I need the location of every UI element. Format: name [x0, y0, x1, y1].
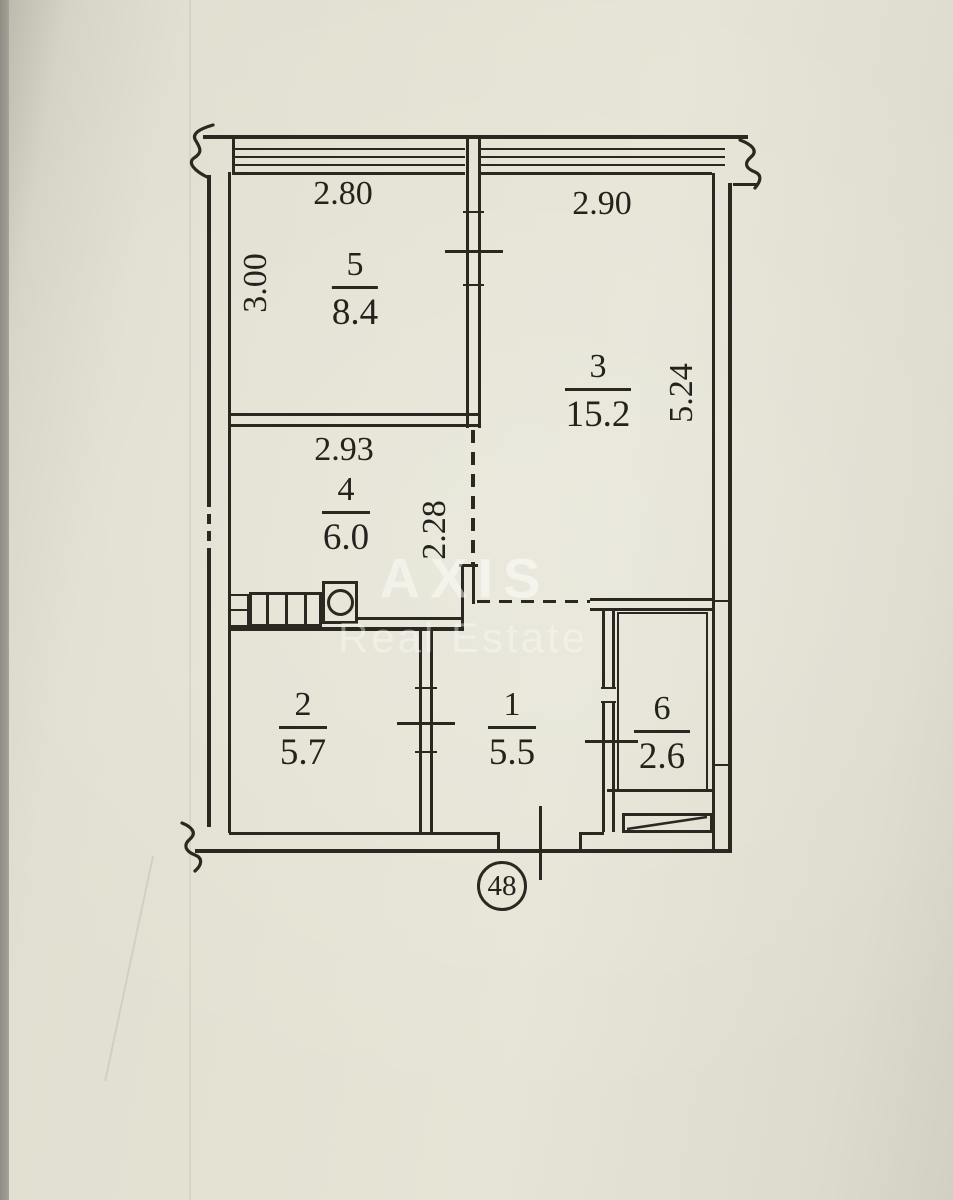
wall-segment [195, 849, 732, 853]
fraction-bar [634, 730, 690, 733]
watermark-real-estate: Real Estate [338, 614, 588, 662]
floor-plan-photo: AXIS Real Estate 2.80 2.90 3.00 5.24 2.9… [0, 0, 953, 1200]
counter-divider [266, 595, 269, 624]
room-area: 5.5 [488, 734, 536, 771]
sink-icon [327, 589, 354, 616]
room-area: 15.2 [565, 396, 631, 433]
counter-divider [285, 595, 288, 624]
wall-segment [602, 702, 605, 832]
wall-segment [612, 702, 615, 832]
window-line [481, 148, 725, 150]
dimension-tick [397, 722, 455, 725]
room-area: 8.4 [332, 294, 378, 331]
wall-joint-tick [712, 600, 728, 602]
wall-segment [229, 832, 499, 835]
balcony-glazing-line [617, 613, 619, 789]
wall-segment [466, 137, 469, 428]
dimension-label-middle: 2.93 [314, 433, 374, 467]
opening-tick [415, 751, 437, 753]
wall-segment [228, 424, 481, 427]
room-area: 6.0 [322, 519, 370, 556]
dimension-tick [445, 250, 503, 253]
dimension-tick [585, 740, 638, 743]
entrance-jamb [497, 832, 500, 850]
wall-axis-dash [207, 531, 211, 541]
kitchen-cabinet-divider [230, 609, 247, 611]
dimension-label-left: 3.00 [239, 253, 273, 313]
break-squiggle-top-right [740, 140, 760, 188]
wall-segment [733, 183, 757, 186]
wall-joint-tick [712, 764, 728, 766]
photo-left-edge [0, 0, 9, 1200]
wall-segment [590, 608, 714, 611]
wall-segment [203, 135, 748, 139]
fraction-bar [332, 286, 378, 289]
room-number: 4 [322, 473, 370, 507]
dimension-label-top-left: 2.80 [313, 177, 373, 211]
wall-segment [607, 789, 713, 792]
paper-crease [104, 856, 154, 1081]
window-line [232, 148, 465, 150]
balcony-glazing-line [706, 613, 708, 789]
apartment-number-badge: 48 [477, 861, 527, 911]
room-5-label: 5 8.4 [332, 248, 378, 331]
balcony-hatch [622, 813, 713, 833]
opening-tick [463, 211, 484, 213]
room-area: 2.6 [634, 738, 690, 775]
wall-segment [612, 608, 615, 688]
fraction-bar [565, 388, 631, 391]
room-6-label: 6 2.6 [634, 692, 690, 775]
room-4-label: 4 6.0 [322, 473, 370, 556]
window-line [481, 164, 725, 166]
opening-tick [601, 687, 616, 689]
partition-dashed-line [471, 430, 475, 564]
fraction-bar [279, 726, 327, 729]
room-number: 2 [279, 688, 327, 722]
balcony-glazing-line [617, 612, 708, 614]
watermark-axis: AXIS [380, 546, 551, 611]
dimension-label-middle-vertical: 2.28 [418, 500, 452, 560]
wall-segment [602, 608, 605, 688]
wall-segment [728, 183, 732, 850]
wall-segment [478, 137, 481, 428]
wall-segment [207, 175, 211, 507]
break-squiggle-bottom-left [182, 823, 201, 871]
paper-fold-line [189, 0, 191, 1200]
opening-tick [601, 701, 616, 703]
room-number: 5 [332, 248, 378, 282]
room-1-label: 1 5.5 [488, 688, 536, 771]
apartment-number: 48 [488, 870, 517, 903]
opening-tick [415, 687, 437, 689]
fraction-bar [322, 511, 370, 514]
wall-segment [228, 172, 231, 833]
room-number: 1 [488, 688, 536, 722]
break-squiggle-top-left [191, 125, 213, 177]
counter-divider [304, 595, 307, 624]
entrance-axis-line [539, 806, 542, 880]
entrance-jamb [579, 832, 582, 850]
wall-segment [207, 548, 211, 827]
room-number: 3 [565, 350, 631, 384]
room-area: 5.7 [279, 734, 327, 771]
wall-segment [580, 832, 604, 835]
fraction-bar [488, 726, 536, 729]
wall-segment [590, 598, 714, 601]
window-line [481, 156, 725, 158]
dimension-label-right: 5.24 [665, 363, 699, 423]
dimension-label-top-right: 2.90 [572, 187, 632, 221]
wall-axis-dash [207, 514, 211, 524]
window-sill [481, 172, 712, 175]
wall-segment [712, 173, 715, 850]
room-number: 6 [634, 692, 690, 726]
window-line [232, 156, 465, 158]
room-3-label: 3 15.2 [565, 350, 631, 433]
room-2-label: 2 5.7 [279, 688, 327, 771]
window-line [232, 164, 465, 166]
wall-segment [228, 413, 481, 416]
opening-tick [463, 284, 484, 286]
